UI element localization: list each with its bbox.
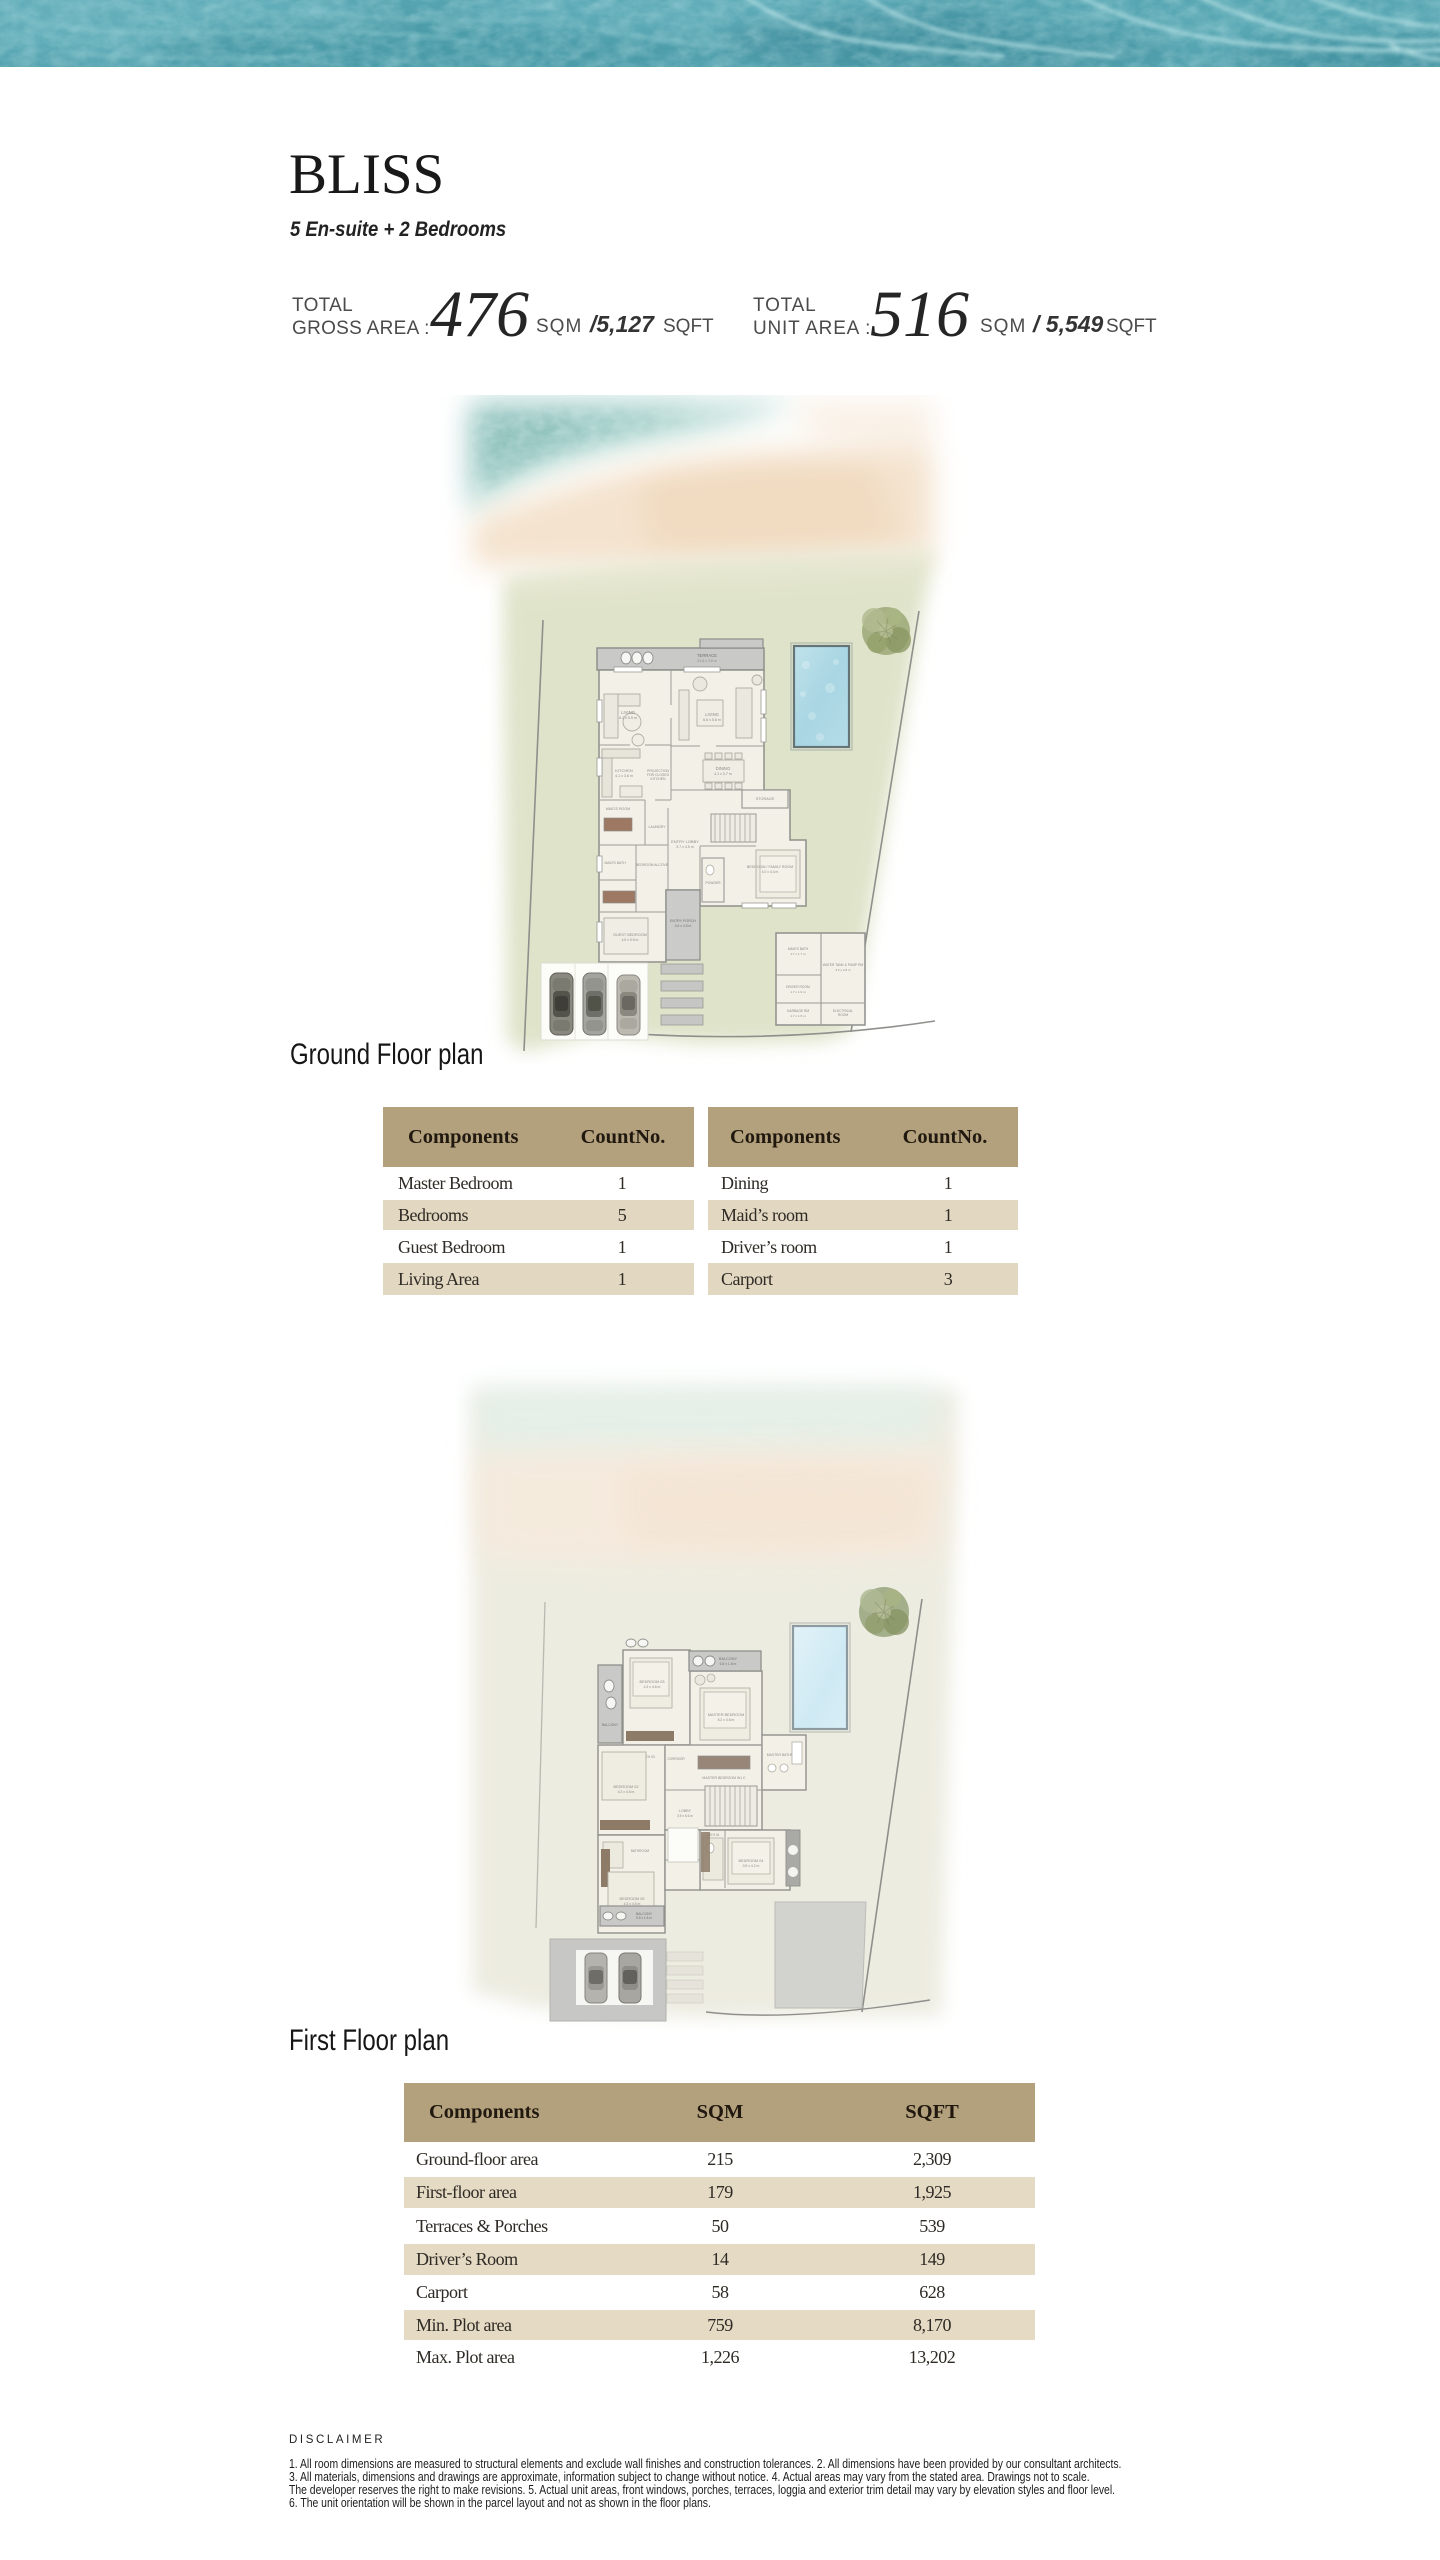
- svg-text:CORRIDOR: CORRIDOR: [667, 1757, 685, 1761]
- svg-text:LIVING: LIVING: [621, 710, 635, 715]
- svg-text:3.2 x 2.8 m: 3.2 x 2.8 m: [835, 968, 851, 972]
- svg-text:ENTRY PORCH: ENTRY PORCH: [670, 919, 696, 923]
- svg-text:BEDROOM ALCOVE: BEDROOM ALCOVE: [636, 863, 669, 867]
- svg-text:4.3 x 4.6 m: 4.3 x 4.6 m: [644, 1685, 661, 1689]
- svg-text:POWDER: POWDER: [705, 881, 721, 885]
- svg-text:6.5 x 1.8 m: 6.5 x 1.8 m: [720, 1662, 737, 1666]
- svg-text:ROOM: ROOM: [838, 1013, 849, 1017]
- svg-text:BEDROOM 02: BEDROOM 02: [614, 1785, 639, 1789]
- svg-text:KITCHEN: KITCHEN: [651, 777, 666, 781]
- svg-text:MAID'S BATH: MAID'S BATH: [604, 861, 626, 865]
- svg-text:BEDROOM 04: BEDROOM 04: [739, 1859, 764, 1863]
- svg-text:GARBAGE RM: GARBAGE RM: [787, 1009, 810, 1013]
- svg-text:DRIVER ROOM: DRIVER ROOM: [786, 985, 810, 989]
- svg-text:MAID'S ROOM: MAID'S ROOM: [606, 807, 630, 811]
- svg-text:STORAGE: STORAGE: [756, 797, 775, 801]
- svg-text:1.7 x 1.9 m: 1.7 x 1.9 m: [790, 990, 806, 994]
- svg-text:4.1 x 3.6 m: 4.1 x 3.6 m: [615, 774, 633, 778]
- svg-text:MASTER BEDROOM: MASTER BEDROOM: [708, 1713, 745, 1717]
- svg-text:GUEST BEDROOM: GUEST BEDROOM: [613, 933, 647, 937]
- svg-text:MAID'S BATH: MAID'S BATH: [788, 947, 809, 951]
- svg-text:WATER TANK & PUMP RM: WATER TANK & PUMP RM: [823, 963, 864, 967]
- svg-text:BATHROOM: BATHROOM: [631, 1849, 650, 1853]
- svg-text:6.2 x 5.5 m: 6.2 x 5.5 m: [619, 716, 637, 720]
- svg-text:BALCONY: BALCONY: [602, 1723, 619, 1727]
- svg-text:ENTRY LOBBY: ENTRY LOBBY: [671, 839, 699, 844]
- svg-text:DINING: DINING: [716, 766, 731, 771]
- svg-text:LAUNDRY: LAUNDRY: [648, 825, 666, 829]
- svg-text:BEDROOM 03: BEDROOM 03: [640, 1680, 665, 1684]
- svg-text:5.5 x 1.8 m: 5.5 x 1.8 m: [636, 1916, 652, 1920]
- svg-text:4.0 x 4.4 m: 4.0 x 4.4 m: [762, 870, 779, 874]
- svg-text:5.2 x 4.6 m: 5.2 x 4.6 m: [718, 1718, 735, 1722]
- svg-text:KITCHEN: KITCHEN: [615, 768, 633, 773]
- svg-text:1.7 x 1.7 m: 1.7 x 1.7 m: [790, 952, 806, 956]
- svg-text:3.9 x 4.2 m: 3.9 x 4.2 m: [743, 1864, 760, 1868]
- svg-text:3.9 x 6.6 m: 3.9 x 6.6 m: [677, 1814, 693, 1818]
- svg-text:TERRACE: TERRACE: [697, 653, 717, 658]
- svg-text:MASTER BEDROOM W.I.C: MASTER BEDROOM W.I.C: [702, 1776, 746, 1780]
- svg-text:LOBBY: LOBBY: [679, 1809, 692, 1813]
- svg-text:3.6 x 4.5 m: 3.6 x 4.5 m: [675, 924, 692, 928]
- svg-text:4.2 x 4.6 m: 4.2 x 4.6 m: [618, 1790, 635, 1794]
- svg-text:BALCONY: BALCONY: [719, 1657, 738, 1661]
- svg-text:LIVING: LIVING: [705, 712, 719, 717]
- svg-text:BEDROOM 05: BEDROOM 05: [620, 1897, 645, 1901]
- svg-text:BEDROOM / FAMILY ROOM: BEDROOM / FAMILY ROOM: [747, 865, 793, 869]
- svg-text:1.7 x 1.5 m: 1.7 x 1.5 m: [790, 1014, 806, 1018]
- svg-text:4.5 x 5.5 m: 4.5 x 5.5 m: [622, 938, 639, 942]
- svg-text:21.8 x 3.8 m: 21.8 x 3.8 m: [697, 659, 717, 663]
- svg-text:3.7 x 4.5 m: 3.7 x 4.5 m: [676, 845, 694, 849]
- svg-text:6.6 x 5.6 m: 6.6 x 5.6 m: [703, 718, 721, 722]
- svg-text:4.1 x 3.7 m: 4.1 x 3.7 m: [714, 772, 732, 776]
